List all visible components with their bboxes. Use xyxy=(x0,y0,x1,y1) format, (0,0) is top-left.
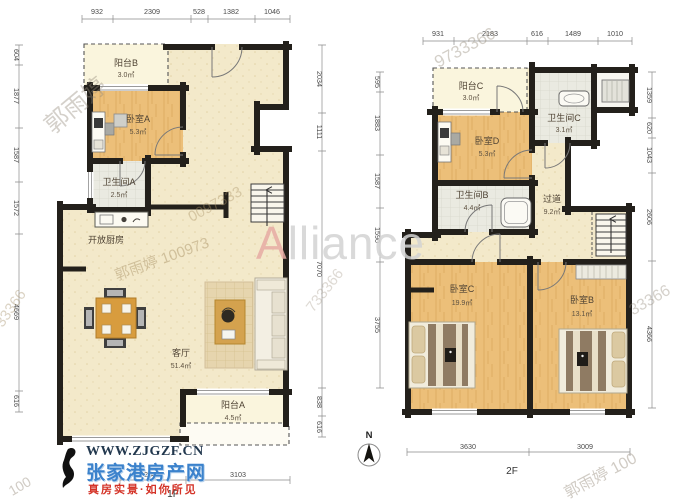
room-area: 19.9㎡ xyxy=(452,299,473,307)
room-label: 阳台A xyxy=(221,399,245,410)
sink-icon-bathroom-c xyxy=(559,91,589,106)
svg-text:616: 616 xyxy=(315,421,324,433)
room-label: 过道 xyxy=(543,193,561,204)
svg-text:4366: 4366 xyxy=(645,326,654,342)
room-label: 卫生间A xyxy=(102,176,135,187)
room-label: 阳台B xyxy=(114,57,138,68)
room-label: 开放厨房 xyxy=(88,234,124,245)
room-label: 卧室B xyxy=(570,294,594,305)
room-area: 3.0㎡ xyxy=(118,71,135,79)
svg-text:931: 931 xyxy=(432,29,444,38)
svg-text:1489: 1489 xyxy=(565,29,581,38)
svg-text:1590: 1590 xyxy=(373,227,382,243)
svg-text:2309: 2309 xyxy=(144,7,160,16)
svg-text:2542: 2542 xyxy=(144,470,160,479)
room-area: 2.5㎡ xyxy=(111,191,128,199)
svg-text:1359: 1359 xyxy=(645,87,654,103)
balcony-a-outline xyxy=(180,423,289,445)
bed-icon-bedroom-b xyxy=(559,329,627,393)
floorplan-1f: 阳台B 3.0㎡ 卧室A 5.3㎡ 卫生间A 2.5㎡ 开放厨房 客厅 51.4… xyxy=(12,7,326,500)
room-area: 3.0㎡ xyxy=(463,94,480,102)
compass-n-label: N xyxy=(366,430,373,441)
svg-text:1572: 1572 xyxy=(12,200,21,216)
north-compass-icon: N xyxy=(358,430,380,466)
room-area: 51.4㎡ xyxy=(171,362,192,370)
room-area: 3.1㎡ xyxy=(556,126,573,134)
svg-text:1877: 1877 xyxy=(12,88,21,104)
svg-text:1883: 1883 xyxy=(373,115,382,131)
svg-text:932: 932 xyxy=(91,7,103,16)
floorplan-image: 阳台B 3.0㎡ 卧室A 5.3㎡ 卫生间A 2.5㎡ 开放厨房 客厅 51.4… xyxy=(0,0,690,504)
room-area: 9.2㎡ xyxy=(544,208,561,216)
svg-text:3755: 3755 xyxy=(373,317,382,333)
svg-text:4669: 4669 xyxy=(12,304,21,320)
stairs-2f-icon xyxy=(592,212,626,258)
room-area: 4.4㎡ xyxy=(464,204,481,212)
svg-text:1111: 1111 xyxy=(315,125,324,139)
svg-text:528: 528 xyxy=(193,7,205,16)
svg-text:595: 595 xyxy=(373,76,382,88)
svg-text:838: 838 xyxy=(315,396,324,408)
room-area: 4.5㎡ xyxy=(225,414,242,422)
svg-text:616: 616 xyxy=(531,29,543,38)
svg-text:620: 620 xyxy=(645,122,654,134)
svg-text:604: 604 xyxy=(12,49,21,61)
svg-text:1587: 1587 xyxy=(12,147,21,163)
stairs-1f-icon xyxy=(251,184,284,226)
room-label: 卧室C xyxy=(450,283,475,294)
svg-text:7070: 7070 xyxy=(315,261,324,277)
room-label: 卧室D xyxy=(475,135,500,146)
svg-text:2034: 2034 xyxy=(315,71,324,87)
floor-label-1f: 1F xyxy=(167,489,179,500)
svg-text:1010: 1010 xyxy=(607,29,623,38)
svg-text:1382: 1382 xyxy=(223,7,239,16)
svg-text:1587: 1587 xyxy=(373,173,382,189)
room-label: 卫生间B xyxy=(455,189,488,200)
svg-text:3103: 3103 xyxy=(230,470,246,479)
wardrobe-icon-bedroom-b xyxy=(576,265,626,279)
room-area: 5.3㎡ xyxy=(479,150,496,158)
svg-text:2183: 2183 xyxy=(482,29,498,38)
floor-label-2f: 2F xyxy=(506,466,518,477)
room-area: 5.3㎡ xyxy=(130,128,147,136)
svg-text:3630: 3630 xyxy=(460,442,476,451)
room-label: 阳台C xyxy=(459,80,484,91)
kitchen-counter-icon xyxy=(95,212,148,227)
room-area: 13.1㎡ xyxy=(572,310,593,318)
bed-icon-bedroom-c xyxy=(409,322,475,388)
svg-text:3009: 3009 xyxy=(577,442,593,451)
site-logo-mark xyxy=(63,448,76,488)
svg-text:2606: 2606 xyxy=(645,209,654,225)
svg-text:616: 616 xyxy=(12,395,21,407)
svg-text:1046: 1046 xyxy=(264,7,280,16)
svg-text:1043: 1043 xyxy=(645,147,654,163)
sofa-and-rug-icon xyxy=(205,278,287,370)
appliance-icon-utility xyxy=(602,80,629,102)
floorplan-2f: 阳台C 3.0㎡ 卫生间C 3.1㎡ 卧室D 5.3㎡ 卫生间B 4.4㎡ 过道… xyxy=(373,29,656,477)
room-label: 客厅 xyxy=(172,347,190,358)
bathtub-icon-bathroom-b xyxy=(501,198,531,227)
room-label: 卧室A xyxy=(126,113,150,124)
room-label: 卫生间C xyxy=(547,112,581,123)
floorplan-svg: 阳台B 3.0㎡ 卧室A 5.3㎡ 卫生间A 2.5㎡ 开放厨房 客厅 51.4… xyxy=(0,0,690,504)
